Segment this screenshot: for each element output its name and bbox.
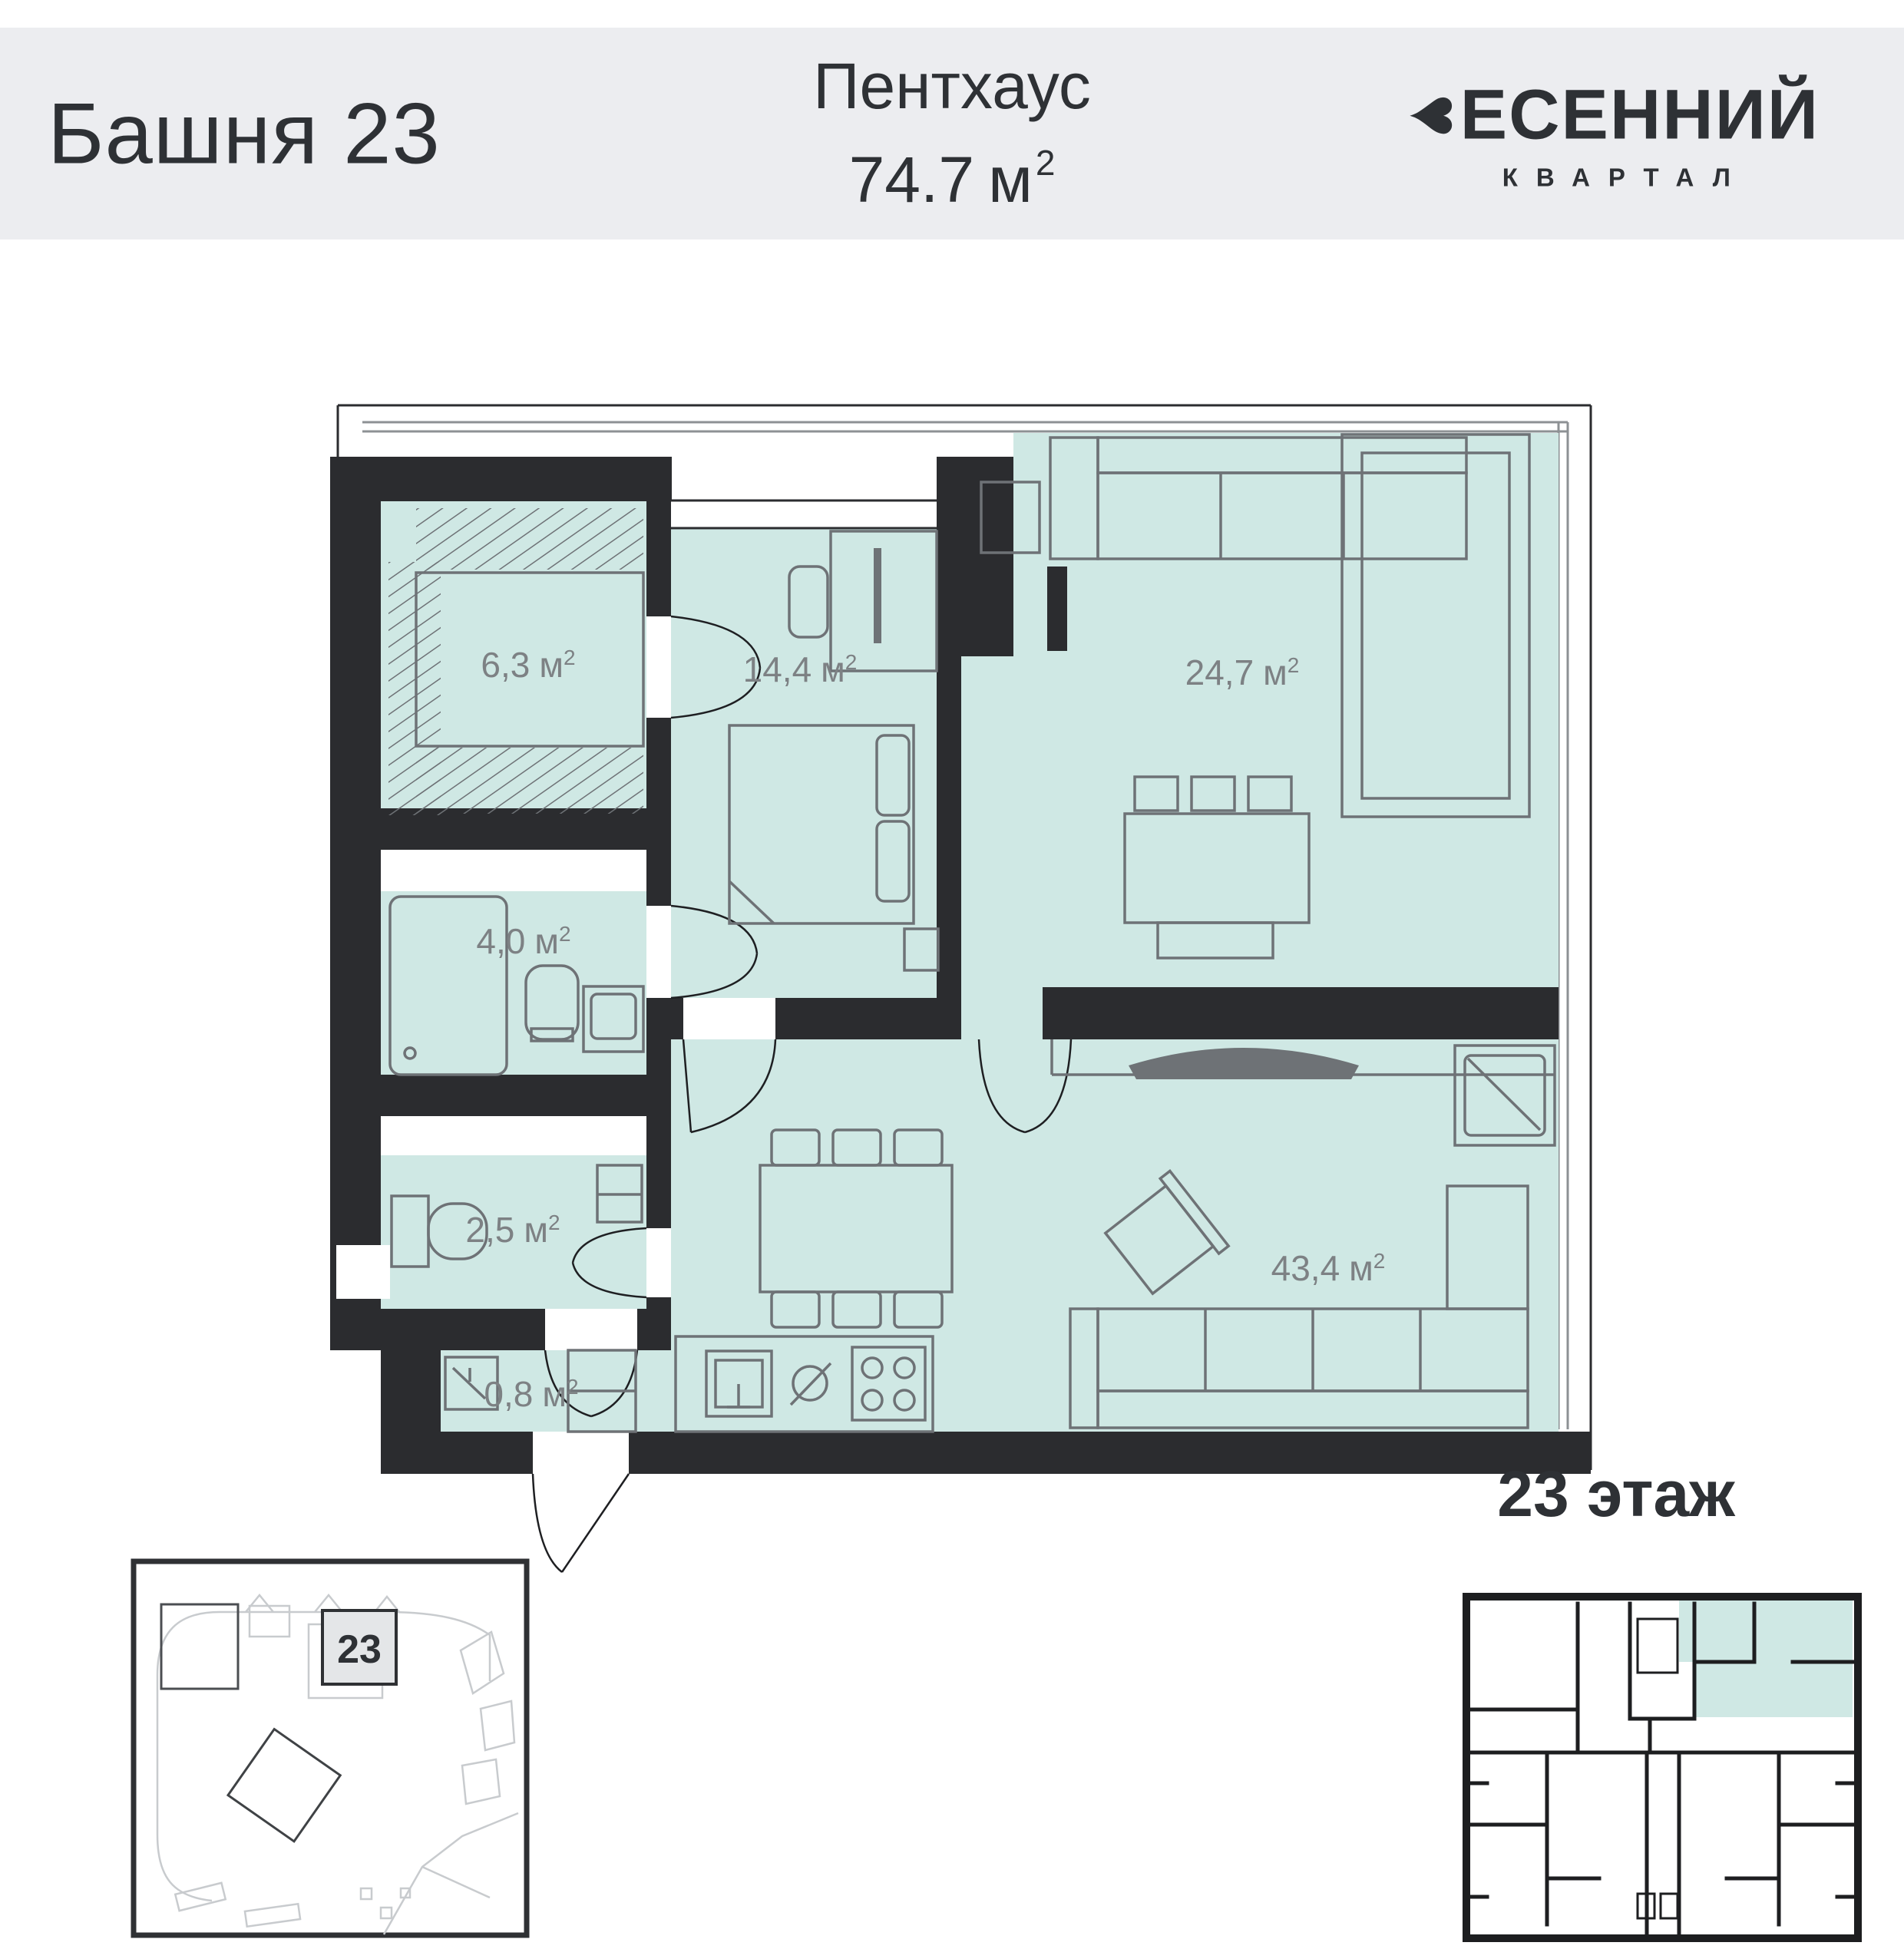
label-wardrobe: 6,3м2 (481, 645, 575, 685)
room-living-kitchen (671, 1039, 1559, 1432)
floor-overview-plan (1463, 1593, 1862, 1942)
area-unit: м (988, 144, 1033, 216)
logo-subtitle: КВАРТАЛ (1413, 164, 1820, 193)
brand-logo: ♥ ЕСЕННИЙ КВАРТАЛ (1413, 75, 1820, 193)
area-value: 74.7 (849, 144, 975, 216)
logo-wordmark: ЕСЕННИЙ (1460, 75, 1820, 156)
bedroom-window (671, 500, 937, 528)
building-23-marker: 23 (322, 1610, 396, 1684)
highlighted-unit (1679, 1600, 1853, 1717)
monitor (874, 548, 881, 643)
floor-plan: 6,3м2 14,4м2 24,7м2 4,0м2 2,5м2 0,8м2 43… (330, 384, 1597, 1581)
room-bedroom (671, 528, 937, 998)
label-lounge: 24,7м2 (1185, 652, 1300, 692)
area-sup: 2 (1036, 143, 1056, 183)
building-number: 23 (337, 1627, 382, 1672)
heart-leaf-icon: ♥ (1400, 94, 1469, 137)
apartment-summary: Пентхаус 74.7м2 (813, 40, 1091, 227)
apartment-type: Пентхаус (813, 40, 1091, 134)
label-wc: 2,5м2 (465, 1210, 560, 1250)
door-entrance (533, 1474, 629, 1572)
label-hall: 0,8м2 (484, 1374, 578, 1414)
label-bedroom: 14,4м2 (743, 649, 858, 689)
floor-plan-svg: 6,3м2 14,4м2 24,7м2 4,0м2 2,5м2 0,8м2 43… (330, 384, 1597, 1581)
label-living-kitchen: 43,4м2 (1271, 1248, 1386, 1288)
site-plan: 23 (131, 1558, 530, 1938)
floor-overview-svg (1463, 1593, 1862, 1942)
label-bathroom: 4,0м2 (476, 921, 570, 961)
header-band: Башня 23 Пентхаус 74.7м2 ♥ ЕСЕННИЙ КВАРТ… (0, 28, 1904, 239)
tower-title: Башня 23 (48, 84, 441, 183)
page: Башня 23 Пентхаус 74.7м2 ♥ ЕСЕННИЙ КВАРТ… (0, 0, 1904, 1949)
floor-overview-title: 23 этаж (1416, 1457, 1816, 1531)
site-plan-svg: 23 (131, 1558, 530, 1938)
apartment-area: 74.7м2 (813, 134, 1091, 227)
